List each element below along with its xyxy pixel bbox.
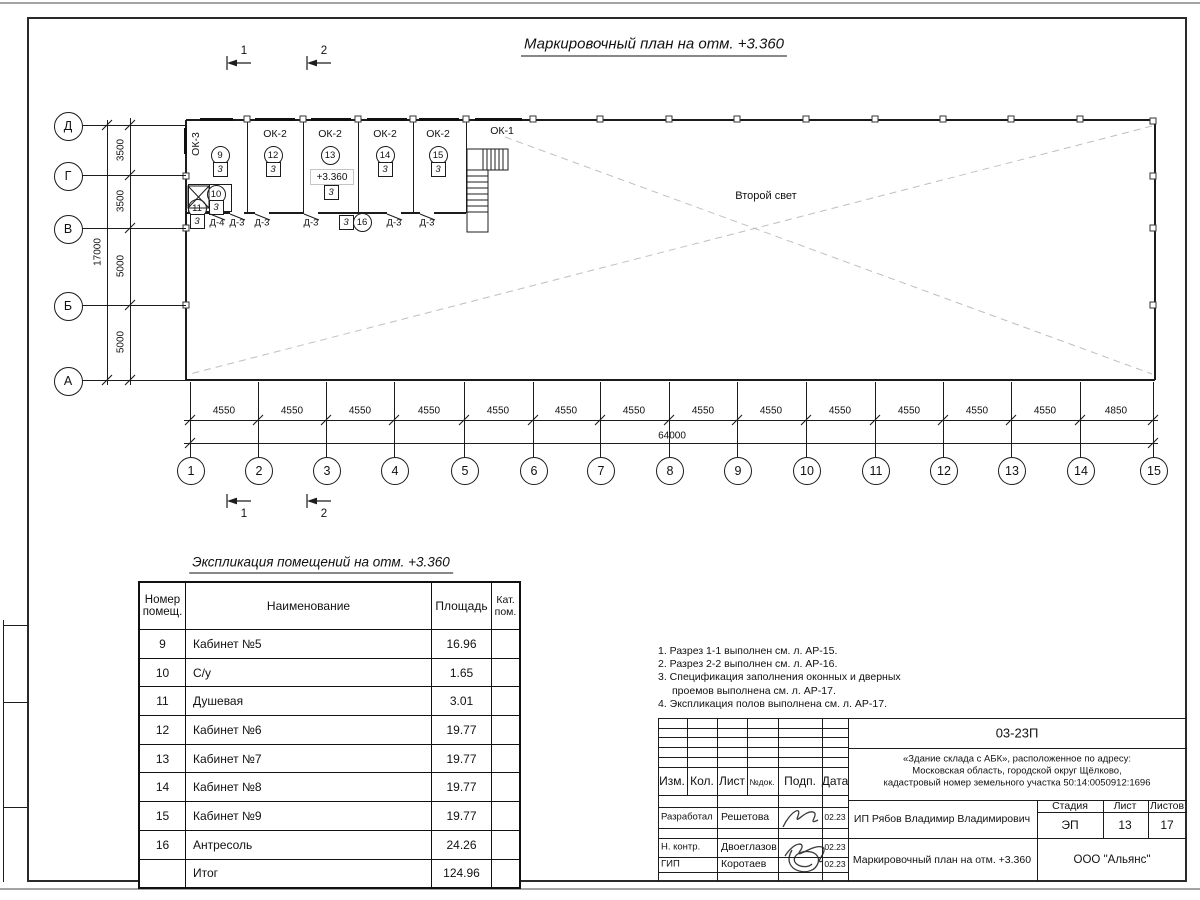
floor-type-mark: 3 — [431, 162, 446, 177]
exp-cell-area: 16.96 — [432, 630, 492, 658]
row-axis-bubble: В — [54, 215, 83, 244]
tb-address-line: Московская область, городской округ Щёлк… — [912, 766, 1121, 777]
titleblock-line — [848, 800, 1187, 801]
tb-company: ООО "Альянс" — [1074, 854, 1151, 866]
exp-cell-number: 16 — [140, 831, 186, 859]
window-bar — [255, 118, 295, 121]
exp-row: 12Кабинет №619.77 — [140, 715, 519, 744]
tb-sheet-label: Лист — [1114, 800, 1137, 812]
section-mark-number: 1 — [241, 508, 247, 520]
exp-row: 11Душевая3.01 — [140, 686, 519, 715]
exp-cell-name: Кабинет №7 — [186, 745, 432, 773]
exp-header-cell: Площадь — [432, 583, 492, 629]
wall-segment — [269, 212, 304, 213]
window-mark-label: ОК-2 — [263, 128, 287, 140]
titleblock-line — [1037, 812, 1187, 813]
exp-cell-cat — [492, 831, 519, 859]
floor-type-mark: 3 — [190, 214, 205, 229]
column-marker-square — [803, 116, 810, 123]
signature-scribbles — [783, 811, 824, 872]
h-dim-label: 4550 — [760, 406, 782, 417]
row-axis-line — [81, 305, 186, 306]
door-mark-label: Д-3 — [387, 218, 402, 229]
tb-doc-number: 03-23П — [996, 726, 1039, 741]
exp-cell-name: Антресоль — [186, 831, 432, 859]
left-stamp-line — [3, 620, 4, 882]
exp-cell-area: 124.96 — [432, 860, 492, 888]
v-dim-label: 3500 — [116, 139, 127, 161]
exp-cell-cat — [492, 659, 519, 687]
col-axis-bubble: 10 — [793, 457, 821, 485]
exp-cell-area: 19.77 — [432, 716, 492, 744]
tb-col-data: Дата — [822, 774, 849, 788]
col-axis-bubble: 4 — [381, 457, 409, 485]
second-light-label: Второй свет — [735, 190, 796, 202]
door-mark-label: Д-3 — [230, 218, 245, 229]
h-dim-label: 4550 — [418, 406, 440, 417]
row-axis-bubble: Д — [54, 112, 83, 141]
row-axis-bubble: Г — [54, 162, 83, 191]
h-dim-label: 4550 — [213, 406, 235, 417]
tb-role-date: 02.23 — [824, 812, 845, 822]
exp-cell-number: 11 — [140, 687, 186, 715]
v-dim-line — [130, 118, 131, 385]
column-marker-square — [463, 116, 470, 123]
column-marker-square — [183, 173, 190, 180]
exp-header-cell: Номер помещ. — [140, 583, 186, 629]
titleblock-line — [658, 838, 848, 839]
row-axis-line — [81, 125, 186, 126]
exp-row: 15Кабинет №919.77 — [140, 801, 519, 830]
exp-cell-area: 1.65 — [432, 659, 492, 687]
column-marker-square — [666, 116, 673, 123]
tb-address-line: «Здание склада с АБК», расположенное по … — [903, 754, 1131, 765]
col-axis-bubble: 15 — [1140, 457, 1168, 485]
floor-type-mark: 3 — [213, 162, 228, 177]
exp-cell-area: 24.26 — [432, 831, 492, 859]
tb-role: Разработал — [661, 812, 713, 823]
window-mark-label: ОК-2 — [318, 128, 342, 140]
tb-role-date: 02.23 — [824, 842, 845, 852]
column-marker-square — [734, 116, 741, 123]
window-mark-label: ОК-2 — [373, 128, 397, 140]
col-axis-bubble: 12 — [930, 457, 958, 485]
floor-type-mark: 3 — [266, 162, 281, 177]
column-marker-square — [872, 116, 879, 123]
tb-role: Н. контр. — [661, 842, 700, 853]
window-bar — [311, 118, 351, 121]
exp-cell-name: Кабинет №5 — [186, 630, 432, 658]
h-dim-label: 4550 — [966, 406, 988, 417]
column-marker-square — [940, 116, 947, 123]
notes: 1. Разрез 1-1 выполнен см. л. АР-15.2. Р… — [658, 645, 1058, 711]
column-marker-square — [530, 116, 537, 123]
exp-cell-area: 19.77 — [432, 773, 492, 801]
floor-type-mark: 3 — [209, 200, 224, 215]
window-bar — [419, 118, 459, 121]
wall-segment — [466, 120, 467, 213]
exp-row: 13Кабинет №719.77 — [140, 744, 519, 773]
titleblock-line — [747, 718, 748, 795]
left-stamp-line — [3, 625, 27, 626]
col-axis-bubble: 2 — [245, 457, 273, 485]
titleblock-line — [658, 718, 1187, 719]
explication-table: Номер помещ. Наименование Площадь Кат. п… — [138, 581, 521, 889]
h-dim-label: 4550 — [829, 406, 851, 417]
wall-segment — [358, 120, 359, 213]
exp-cell-name: Кабинет №9 — [186, 802, 432, 830]
tb-sheet-value: 13 — [1118, 818, 1131, 832]
wall-segment — [247, 120, 248, 213]
room-number-bubble: 16 — [353, 213, 372, 232]
drawing-sheet: { "sheet": { "plan_title": "Маркировочны… — [0, 0, 1200, 900]
wall-segment — [303, 120, 304, 213]
wall-segment — [413, 120, 414, 213]
h-dim-label: 4550 — [349, 406, 371, 417]
titleblock-line — [848, 718, 849, 882]
note-line: проемов выполнена см. л. АР-17. — [658, 685, 1058, 698]
wall-segment — [186, 379, 1155, 380]
titleblock-line — [658, 828, 848, 829]
exp-cell-area: 19.77 — [432, 745, 492, 773]
exp-cell-cat — [492, 773, 519, 801]
column-marker-square — [1150, 173, 1157, 180]
exp-cell-name: Кабинет №8 — [186, 773, 432, 801]
tb-role-name: Коротаев — [721, 858, 766, 870]
tb-role: ГИП — [661, 859, 680, 870]
col-axis-bubble: 14 — [1067, 457, 1095, 485]
floor-type-mark: 3 — [324, 185, 339, 200]
h-dim-label: 4850 — [1105, 406, 1127, 417]
door-mark-label: Д-3 — [420, 218, 435, 229]
exp-cell-number: 13 — [140, 745, 186, 773]
h-dim-label: 4550 — [1034, 406, 1056, 417]
column-marker-square — [1150, 118, 1157, 125]
window-bar — [184, 128, 187, 154]
column-marker-square — [300, 116, 307, 123]
titleblock-line — [658, 807, 848, 808]
room-number-bubble: 13 — [321, 146, 340, 165]
exp-cell-number: 12 — [140, 716, 186, 744]
tb-stage-label: Стадия — [1052, 800, 1088, 812]
exp-row: 9Кабинет №516.96 — [140, 629, 519, 658]
exp-header-cell: Кат. пом. — [492, 583, 519, 629]
titleblock-line — [658, 872, 848, 873]
section-mark-number: 2 — [321, 45, 327, 57]
exp-cell-cat — [492, 630, 519, 658]
col-axis-bubble: 7 — [587, 457, 615, 485]
wall-segment — [185, 120, 186, 380]
h-dim-label: 4550 — [692, 406, 714, 417]
row-axis-line — [81, 380, 186, 381]
door-mark-label: Д-4 — [210, 218, 225, 229]
exp-header-row: Номер помещ. Наименование Площадь Кат. п… — [140, 583, 519, 629]
floor-type-mark: 3 — [339, 215, 354, 230]
titleblock-line — [1148, 800, 1149, 838]
column-marker-square — [1008, 116, 1015, 123]
window-bar — [475, 118, 522, 121]
exp-header-cell: Наименование — [186, 583, 432, 629]
wall-segment — [1154, 120, 1155, 380]
h-dim-label: 4550 — [898, 406, 920, 417]
door-mark-label: Д-3 — [255, 218, 270, 229]
titleblock-line — [658, 795, 848, 796]
door-mark-label: Д-3 — [304, 218, 319, 229]
row-axis-bubble: А — [54, 367, 83, 396]
column-marker-square — [1150, 225, 1157, 232]
floor-plan: ДГВБА12345678910111213141535003500500050… — [0, 0, 1200, 560]
column-marker-square — [355, 116, 362, 123]
wall-segment — [244, 212, 255, 213]
v-dim-label: 5000 — [116, 331, 127, 353]
tb-role-name: Решетова — [721, 811, 769, 823]
window-bar — [367, 118, 407, 121]
titleblock-line — [658, 718, 659, 882]
titleblock-line — [822, 718, 823, 882]
tb-address-line: кадастровый номер земельного участка 50:… — [883, 778, 1150, 789]
tb-drawing-name: Маркировочный план на отм. +3.360 — [853, 854, 1031, 866]
exp-cell-cat — [492, 860, 519, 888]
level-mark-box: +3.360 — [310, 169, 354, 185]
col-axis-bubble: 9 — [724, 457, 752, 485]
exp-cell-name: Душевая — [186, 687, 432, 715]
column-marker-square — [1150, 302, 1157, 309]
wall-segment — [401, 212, 420, 213]
exp-cell-number — [140, 860, 186, 888]
exp-cell-cat — [492, 687, 519, 715]
exp-cell-number: 9 — [140, 630, 186, 658]
col-axis-bubble: 1 — [177, 457, 205, 485]
column-marker-square — [244, 116, 251, 123]
window-bar — [200, 118, 233, 121]
h-total-label: 64000 — [658, 431, 686, 442]
titleblock-line — [717, 718, 718, 882]
titleblock-line — [1103, 800, 1104, 838]
tb-col-kol: Кол. — [690, 774, 714, 788]
wall-segment — [434, 212, 466, 213]
exp-row: 10С/у1.65 — [140, 658, 519, 687]
v-dim-label: 3500 — [116, 190, 127, 212]
exp-cell-name: Итог — [186, 860, 432, 888]
h-dim-label: 4550 — [623, 406, 645, 417]
floor-type-mark: 3 — [378, 162, 393, 177]
column-marker-square — [597, 116, 604, 123]
v-dim-label: 5000 — [116, 255, 127, 277]
col-axis-bubble: 5 — [451, 457, 479, 485]
window-mark-label: ОК-3 — [190, 132, 202, 156]
note-line: 3. Спецификация заполнения оконных и две… — [658, 671, 1058, 684]
tb-col-podp: Подп. — [784, 774, 816, 788]
tb-role-date: 02.23 — [824, 859, 845, 869]
exp-row: 14Кабинет №819.77 — [140, 772, 519, 801]
tb-client: ИП Рябов Владимир Владимирович — [854, 813, 1030, 825]
tb-col-izm: Изм. — [659, 774, 685, 788]
section-mark-number: 1 — [241, 45, 247, 57]
column-marker-square — [410, 116, 417, 123]
row-axis-bubble: Б — [54, 292, 83, 321]
wall-segment — [224, 212, 230, 213]
exp-cell-name: С/у — [186, 659, 432, 687]
h-dim-line — [184, 443, 1158, 444]
titleblock-line — [1037, 800, 1038, 882]
note-line: 1. Разрез 1-1 выполнен см. л. АР-15. — [658, 645, 1058, 658]
exp-cell-number: 14 — [140, 773, 186, 801]
exp-cell-name: Кабинет №6 — [186, 716, 432, 744]
tb-sheets-label: Листов — [1150, 800, 1184, 812]
tb-role-name: Двоеглазов — [721, 841, 777, 853]
column-marker-square — [1077, 116, 1084, 123]
titleblock-line — [687, 718, 688, 795]
v-dim-line — [107, 120, 108, 385]
col-axis-bubble: 13 — [998, 457, 1026, 485]
h-dim-label: 4550 — [281, 406, 303, 417]
window-mark-label: ОК-1 — [490, 125, 514, 137]
note-line: 4. Экспликация полов выполнена см. л. АР… — [658, 698, 1058, 711]
exp-cell-area: 19.77 — [432, 802, 492, 830]
col-axis-bubble: 6 — [520, 457, 548, 485]
h-dim-label: 4550 — [487, 406, 509, 417]
row-axis-line — [81, 228, 186, 229]
h-dim-line — [184, 420, 1158, 421]
h-dim-label: 4550 — [555, 406, 577, 417]
titleblock-line — [848, 838, 1187, 839]
left-stamp-line — [3, 702, 27, 703]
col-axis-bubble: 11 — [862, 457, 890, 485]
exp-cell-cat — [492, 802, 519, 830]
col-axis-bubble: 3 — [313, 457, 341, 485]
tb-col-ndok: №док. — [750, 777, 775, 787]
exp-row: 16Антресоль24.26 — [140, 830, 519, 859]
v-total-label: 17000 — [93, 238, 104, 266]
exp-cell-area: 3.01 — [432, 687, 492, 715]
note-line: 2. Разрез 2-2 выполнен см. л. АР-16. — [658, 658, 1058, 671]
exp-cell-number: 15 — [140, 802, 186, 830]
tb-stage-value: ЭП — [1061, 818, 1078, 832]
exp-cell-cat — [492, 745, 519, 773]
exp-cell-cat — [492, 716, 519, 744]
tb-col-list: Лист — [719, 774, 745, 788]
left-stamp-line — [3, 807, 27, 808]
row-axis-line — [81, 175, 186, 176]
titleblock-line — [778, 718, 779, 882]
titleblock-line — [848, 748, 1187, 749]
tb-sheets-value: 17 — [1160, 818, 1173, 832]
exp-row: Итог124.96 — [140, 859, 519, 888]
section-mark-number: 2 — [321, 508, 327, 520]
exp-cell-number: 10 — [140, 659, 186, 687]
col-axis-bubble: 8 — [656, 457, 684, 485]
window-mark-label: ОК-2 — [426, 128, 450, 140]
